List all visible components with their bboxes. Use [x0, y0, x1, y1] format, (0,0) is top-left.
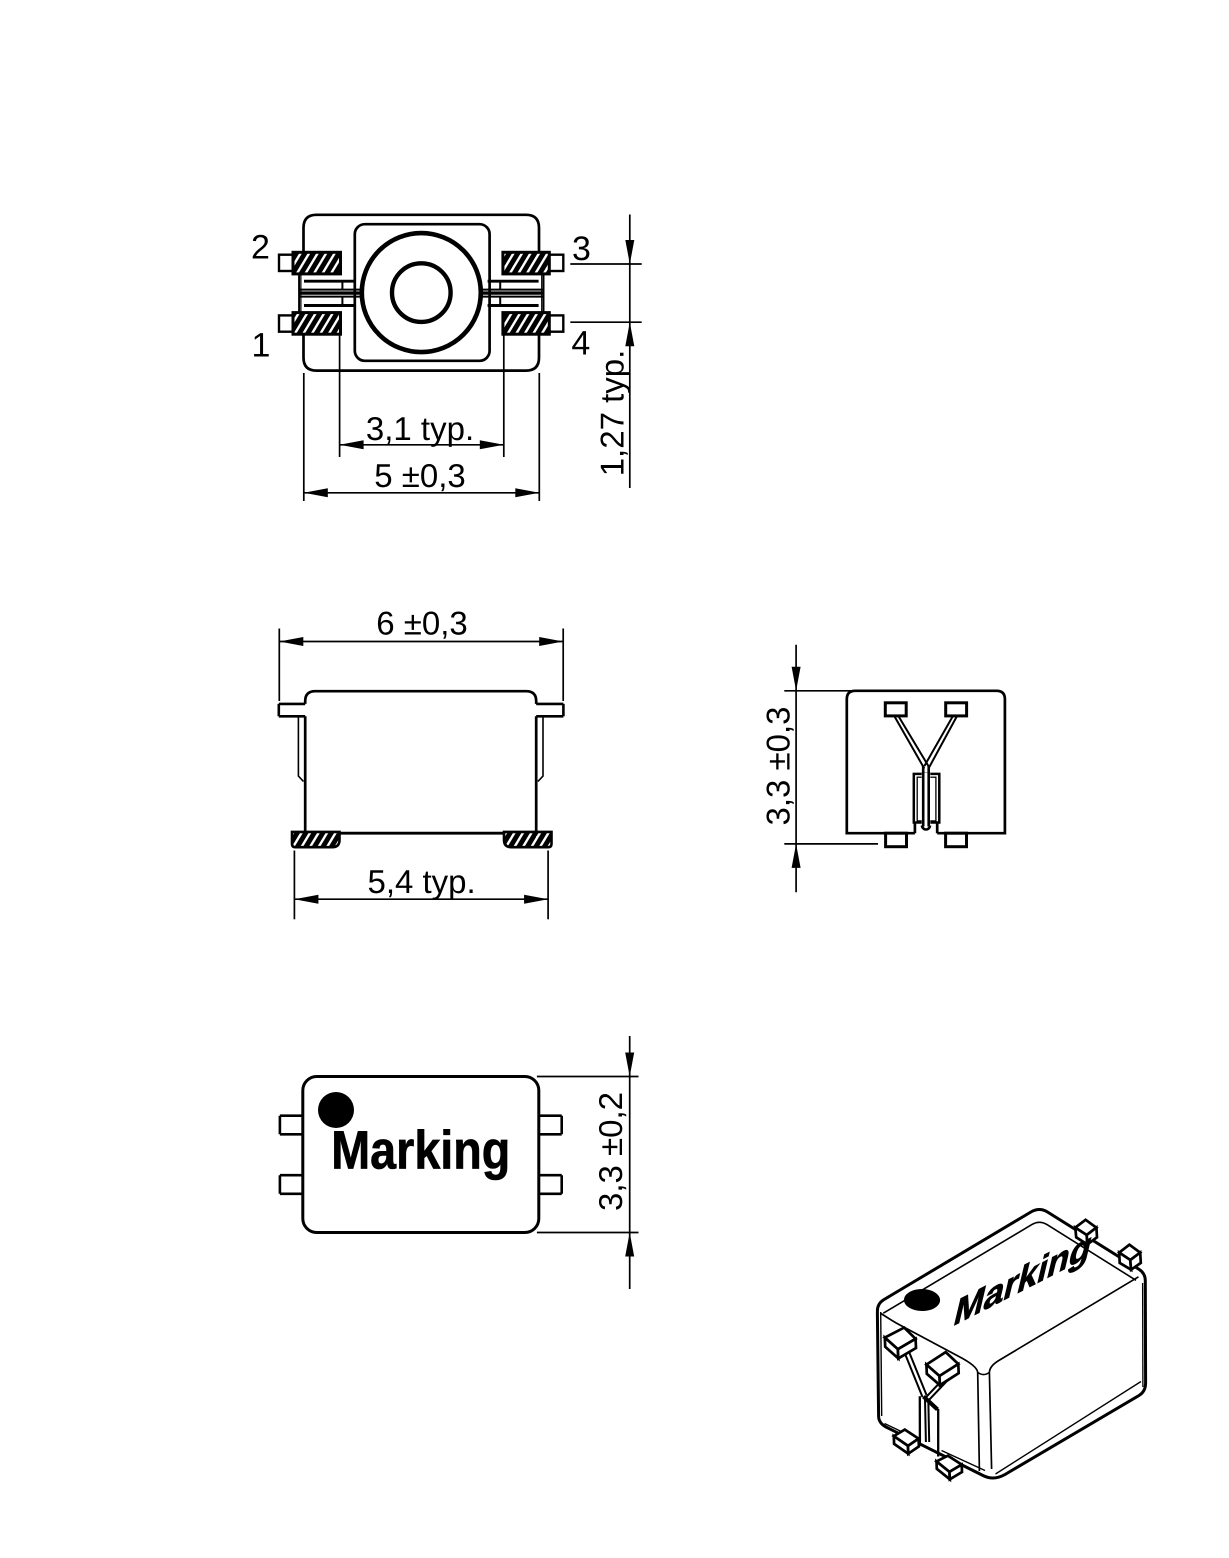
svg-text:3,3 ±0,2: 3,3 ±0,2: [592, 1092, 629, 1211]
svg-text:4: 4: [571, 324, 590, 362]
svg-text:3,1 typ.: 3,1 typ.: [366, 410, 474, 447]
svg-text:1,27 typ.: 1,27 typ.: [594, 350, 631, 477]
svg-text:6 ±0,3: 6 ±0,3: [376, 604, 468, 641]
svg-text:3,3 ±0,3: 3,3 ±0,3: [760, 706, 797, 825]
svg-text:Marking: Marking: [331, 1120, 510, 1180]
svg-text:2: 2: [251, 228, 270, 266]
svg-text:5,4 typ.: 5,4 typ.: [367, 863, 475, 900]
svg-text:3: 3: [572, 230, 591, 268]
svg-text:1: 1: [251, 327, 270, 365]
svg-text:5 ±0,3: 5 ±0,3: [374, 457, 466, 494]
